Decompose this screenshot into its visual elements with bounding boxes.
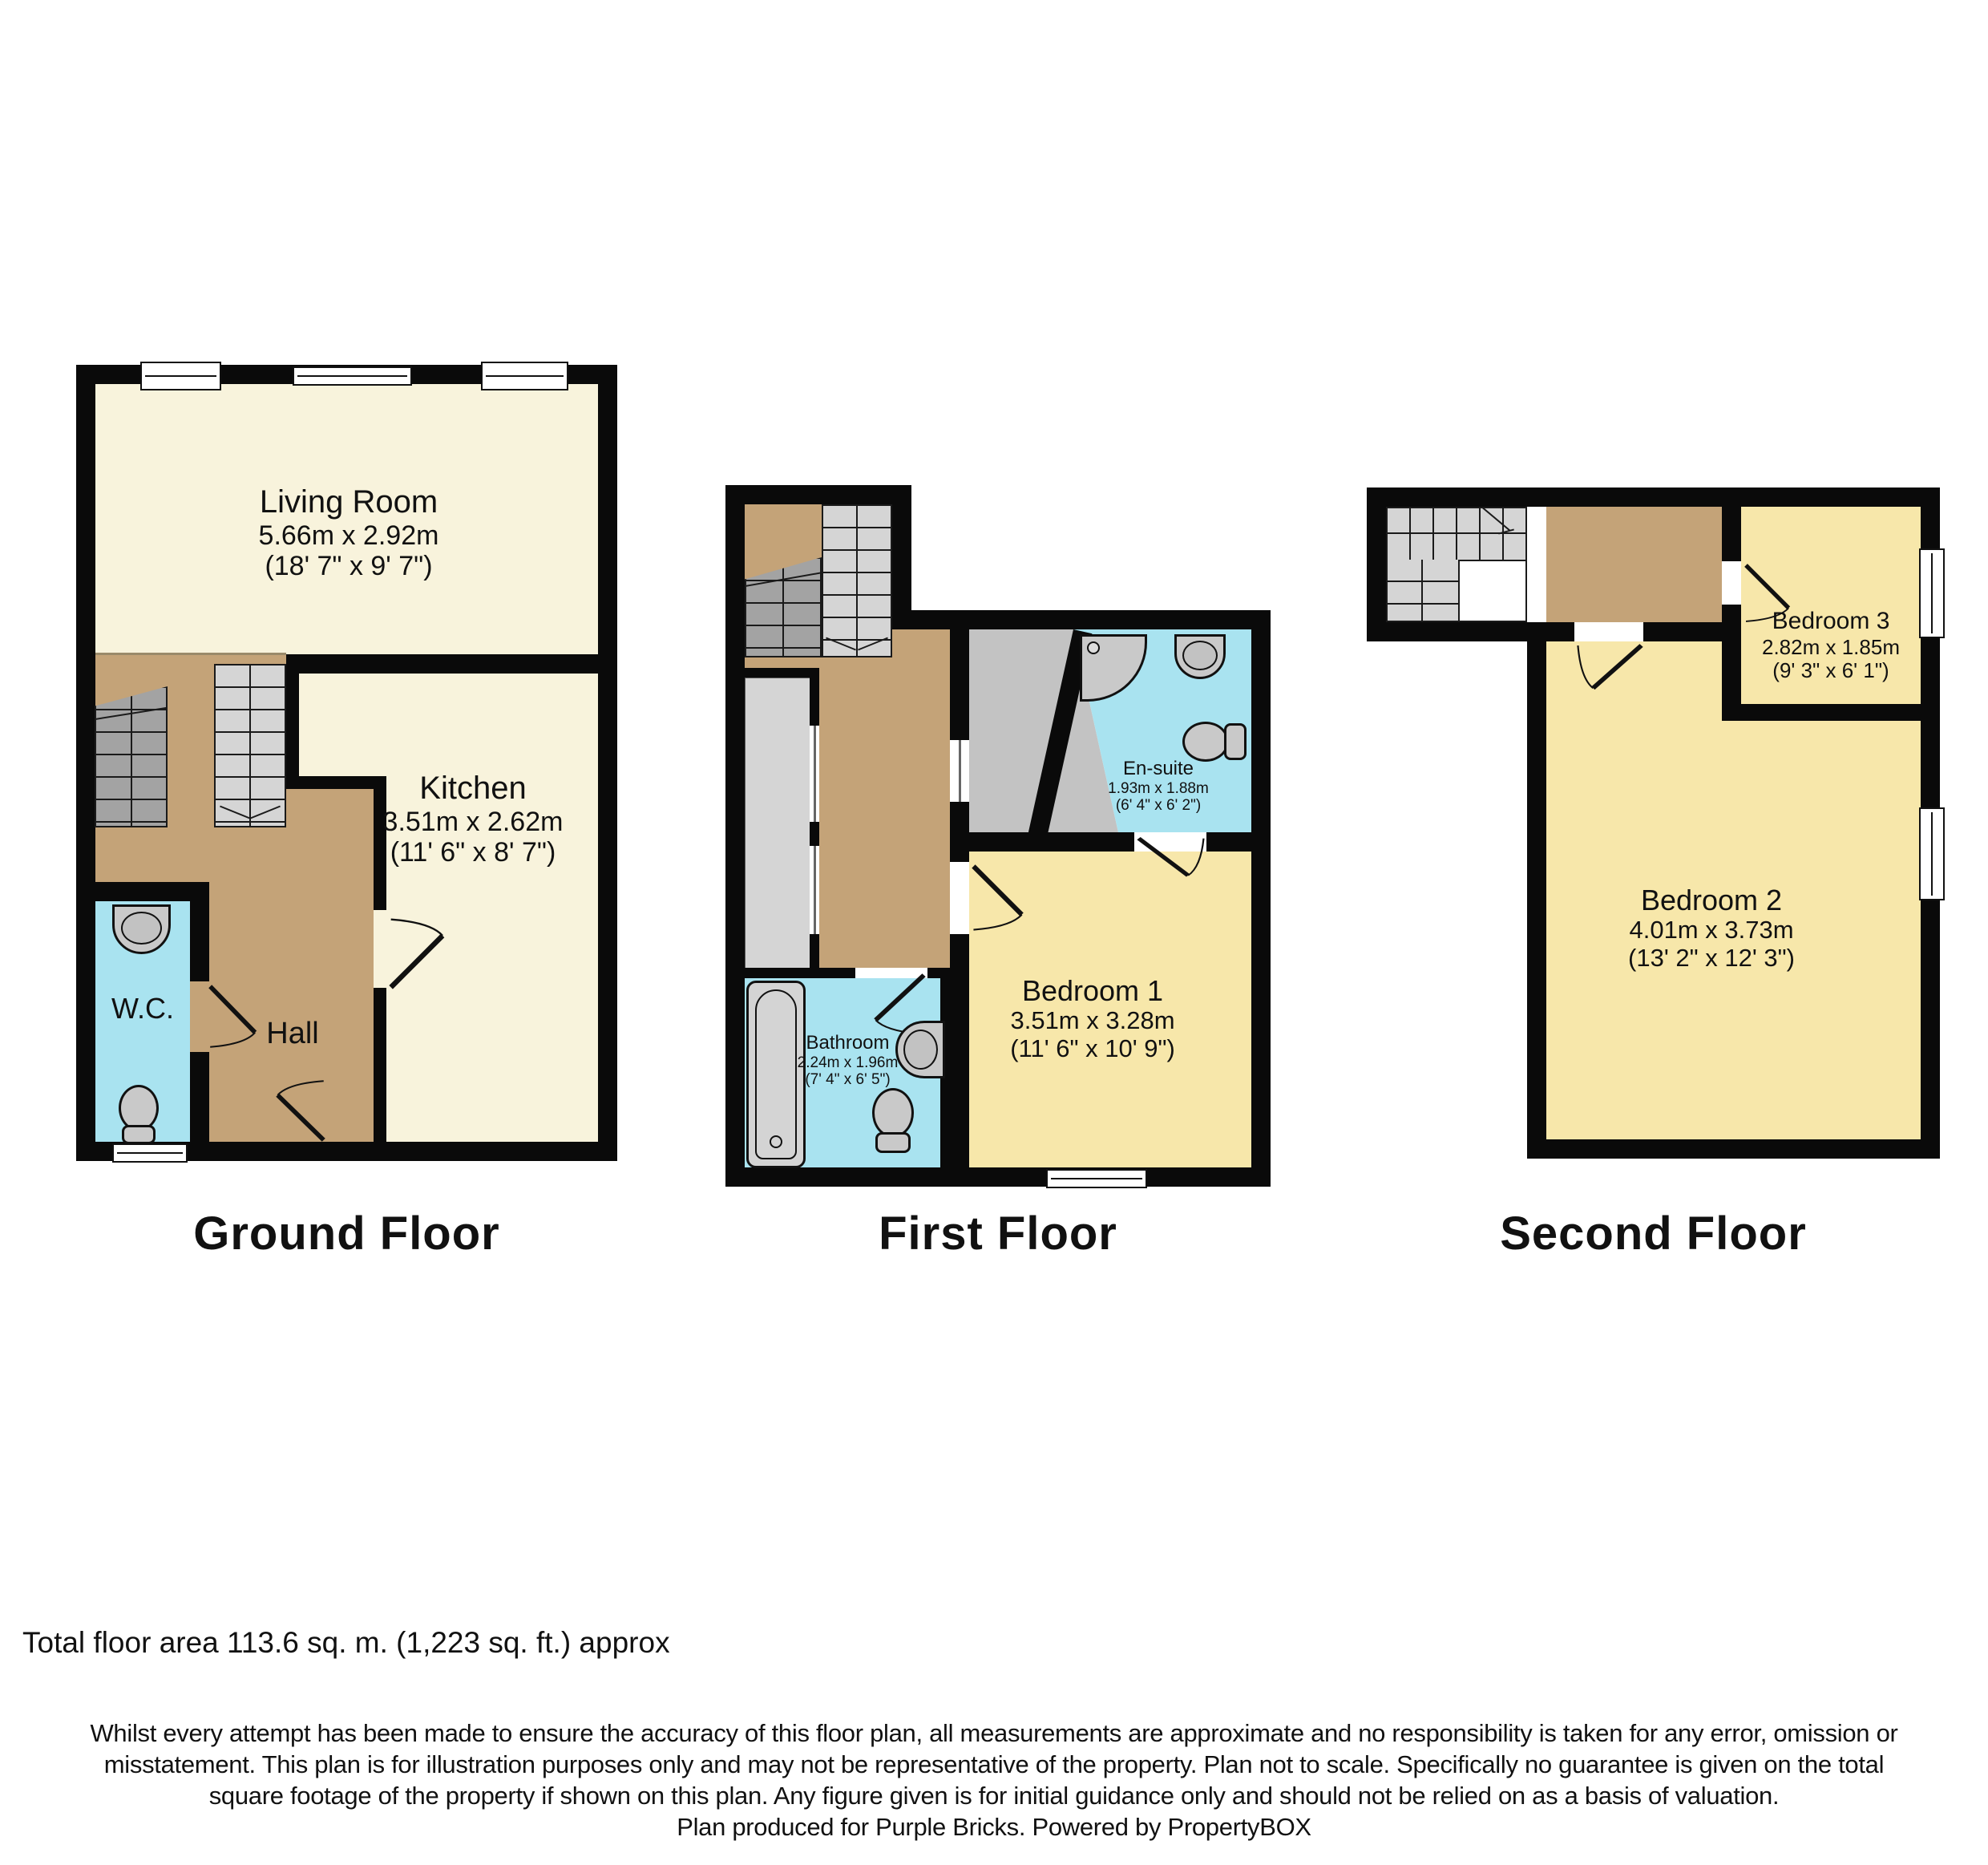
gf-window-top-3-pane: [486, 375, 564, 377]
ff-stairs-arrow-right: [858, 637, 888, 651]
bedroom1-name: Bedroom 1: [972, 974, 1213, 1007]
ensuite-toilet-fixture: [1182, 722, 1247, 762]
sf-wall-main-left: [1527, 622, 1546, 1159]
ff-stairs-down-divider: [856, 506, 858, 656]
ensuite-dim-m: 1.93m x 1.88m: [1090, 780, 1226, 797]
total-floor-area: Total floor area 113.6 sq. m. (1,223 sq.…: [22, 1626, 670, 1660]
kitchen-dim-ft: (11' 6" x 8' 7"): [353, 837, 593, 868]
ensuite-dim-ft: (6' 4" x 6' 2"): [1090, 797, 1226, 814]
ff-wall-main-top: [892, 610, 1271, 629]
gf-wall-left: [76, 365, 95, 1161]
sf-stairs-top-band: [1388, 508, 1525, 560]
first-floor-plan: En-suite 1.93m x 1.88m (6' 4" x 6' 2") B…: [725, 485, 1271, 1187]
bathroom-toilet-bowl: [872, 1088, 914, 1138]
gf-window-top-1-pane: [145, 375, 216, 377]
bedroom1-dim-ft: (11' 6" x 10' 9"): [972, 1035, 1213, 1063]
ff-wall-bottom: [725, 1167, 1271, 1187]
bathroom-label: Bathroom 2.24m x 1.96m (7' 4" x 6' 5"): [782, 1032, 914, 1088]
bedroom3-label: Bedroom 3 2.82m x 1.85m (9' 3" x 6' 1"): [1751, 608, 1911, 682]
gf-window-top-1: [140, 362, 221, 390]
ff-wall-landing-bed-2: [950, 802, 969, 862]
bath-drain: [770, 1135, 782, 1148]
front-door: [261, 1078, 326, 1143]
bedroom3-window-pane: [1931, 553, 1933, 633]
disclaimer-block: Whilst every attempt has been made to en…: [0, 1717, 1988, 1843]
ff-wall-landing-bed-1: [950, 629, 969, 740]
disclaimer-line-4: Plan produced for Purple Bricks. Powered…: [0, 1811, 1988, 1843]
ff-wall-bathroom-top-left: [745, 968, 855, 978]
ff-wall-ensuite-bottom-left: [969, 832, 1134, 852]
gf-wall-wc-right-upper: [190, 901, 209, 981]
bedroom2-dim-ft: (13' 2" x 12' 3"): [1591, 945, 1832, 973]
sf-wall-divider-lower: [1722, 605, 1741, 704]
ff-closet-slide-1: [810, 726, 819, 822]
wc-toilet-fixture: [116, 1085, 156, 1142]
kitchen-label: Kitchen 3.51m x 2.62m (11' 6" x 8' 7"): [353, 770, 593, 868]
ff-closet-slide-2: [810, 846, 819, 934]
floorplan-page: Living Room 5.66m x 2.92m (18' 7" x 9' 7…: [0, 0, 1988, 1865]
sf-stairs-left-column: [1388, 560, 1458, 621]
gf-window-wc-bottom: [112, 1143, 188, 1163]
ff-sliding-gap: [950, 740, 969, 802]
bathroom-toilet-fixture: [870, 1088, 911, 1151]
second-floor-title: Second Floor: [1367, 1207, 1940, 1260]
bedroom1-window-pane: [1051, 1178, 1142, 1179]
gf-stairs-lower-flight: [95, 686, 168, 827]
gf-wall-kitchen-door-lower: [374, 988, 386, 1142]
bedroom1-dim-m: 3.51m x 3.28m: [972, 1007, 1213, 1035]
gf-wall-wc-right-lower: [190, 1052, 209, 1142]
living-room-label: Living Room 5.66m x 2.92m (18' 7" x 9' 7…: [220, 483, 477, 581]
kitchen-door: [388, 916, 462, 990]
gf-stairs-break-line: [92, 705, 180, 720]
bedroom2-name: Bedroom 2: [1591, 884, 1832, 916]
sf-wall-landing-bottom: [1643, 622, 1728, 641]
living-room-dim-ft: (18' 7" x 9' 7"): [220, 551, 477, 581]
living-hall-boundary: [95, 653, 286, 655]
gf-stairs-up-flight: [214, 664, 286, 827]
bedroom2-window-pane: [1931, 812, 1933, 896]
ff-wall-annex-right: [892, 485, 911, 629]
bedroom3-dim-ft: (9' 3" x 6' 1"): [1751, 659, 1911, 682]
ff-stairs-arrow-left: [826, 637, 856, 651]
bedroom1-door: [971, 864, 1040, 932]
wc-sink-basin: [121, 912, 162, 945]
bedroom2-label: Bedroom 2 4.01m x 3.73m (13' 2" x 12' 3"…: [1591, 884, 1832, 973]
gf-stairs-arrow-left: [220, 806, 250, 819]
bedroom3-window: [1919, 548, 1945, 638]
gf-stairs-arrow-right: [250, 806, 281, 819]
gf-wall-kitchen-top: [286, 654, 598, 674]
ensuite-toilet-bowl: [1182, 722, 1229, 762]
hall-label: Hall: [236, 1017, 349, 1051]
bedroom2-window: [1919, 807, 1945, 900]
disclaimer-line-3: square footage of the property if shown …: [0, 1780, 1988, 1811]
ff-wall-landing-bed-3: [950, 934, 969, 1167]
wc-label: W.C.: [103, 992, 183, 1026]
bedroom2-dim-m: 4.01m x 3.73m: [1591, 916, 1832, 945]
gf-wall-kitchen-left: [286, 654, 299, 789]
kitchen-name: Kitchen: [353, 770, 593, 807]
ff-closet-slide-1-line: [814, 726, 816, 822]
ensuite-toilet-tank: [1224, 723, 1247, 760]
ff-stairs-up-divider: [782, 559, 784, 656]
ff-wall-left: [725, 485, 745, 1187]
sf-wall-left-annex: [1367, 487, 1386, 641]
gf-wall-right: [598, 365, 617, 1161]
disclaimer-line-1: Whilst every attempt has been made to en…: [0, 1717, 1988, 1749]
kitchen-dim-m: 3.51m x 2.62m: [353, 807, 593, 837]
gf-window-top-2-pane: [297, 375, 407, 377]
bedroom2-door: [1575, 643, 1644, 704]
ff-wall-ensuite-bottom-right: [1206, 832, 1251, 852]
ensuite-sink-basin: [1182, 641, 1218, 670]
sf-wall-divider-upper: [1722, 507, 1741, 561]
sf-stairs-void: [1458, 560, 1525, 621]
bathroom-dim-ft: (7' 4" x 6' 5"): [782, 1071, 914, 1088]
ff-wall-right: [1251, 610, 1271, 1187]
ff-wall-bathroom-top-right: [927, 968, 950, 978]
sf-landing-area: [1546, 507, 1722, 622]
disclaimer-line-2: misstatement. This plan is for illustrat…: [0, 1749, 1988, 1780]
ensuite-shower-head: [1087, 641, 1100, 654]
bedroom1-window: [1046, 1169, 1147, 1188]
bathroom-toilet-base: [875, 1132, 911, 1153]
sf-stairs: [1386, 507, 1527, 622]
sf-wall-top: [1367, 487, 1940, 507]
sf-wall-bottom: [1527, 1139, 1940, 1159]
ensuite-name: En-suite: [1090, 758, 1226, 780]
ff-sliding-gap-line: [959, 740, 961, 802]
sf-wall-bed3-bottom: [1722, 704, 1921, 721]
ensuite-door: [1136, 836, 1206, 889]
gf-stairs-up-divider: [249, 665, 251, 826]
gf-window-top-2: [293, 366, 412, 386]
gf-window-wc-pane: [117, 1152, 183, 1154]
ff-closet-area: [745, 678, 811, 969]
ff-wall-annex-top: [725, 485, 911, 504]
bedroom3-dim-m: 2.82m x 1.85m: [1751, 636, 1911, 659]
sf-stairs-left-split: [1421, 560, 1423, 621]
wc-toilet-base: [122, 1125, 156, 1144]
living-room-name: Living Room: [220, 483, 477, 520]
ff-closet-slide-2-line: [814, 846, 816, 934]
living-room-dim-m: 5.66m x 2.92m: [220, 520, 477, 551]
second-floor-plan: Bedroom 3 2.82m x 1.85m (9' 3" x 6' 1") …: [1367, 487, 1940, 1159]
bathroom-name: Bathroom: [782, 1032, 914, 1054]
ground-floor-title: Ground Floor: [76, 1207, 617, 1260]
ensuite-label: En-suite 1.93m x 1.88m (6' 4" x 6' 2"): [1090, 758, 1226, 814]
ff-stairs-down-flight: [822, 504, 892, 657]
ff-wall-closet-top: [745, 668, 819, 678]
ff-landing-main: [819, 678, 950, 968]
gf-stairs-lower-divider: [131, 688, 132, 826]
bathroom-dim-m: 2.24m x 1.96m: [782, 1054, 914, 1071]
bedroom1-label: Bedroom 1 3.51m x 3.28m (11' 6" x 10' 9"…: [972, 974, 1213, 1063]
first-floor-title: First Floor: [725, 1207, 1271, 1260]
gf-window-top-3: [481, 362, 568, 390]
bedroom3-name: Bedroom 3: [1751, 608, 1911, 636]
gf-wall-wc-top: [95, 882, 209, 901]
ground-floor-plan: Living Room 5.66m x 2.92m (18' 7" x 9' 7…: [76, 365, 617, 1161]
